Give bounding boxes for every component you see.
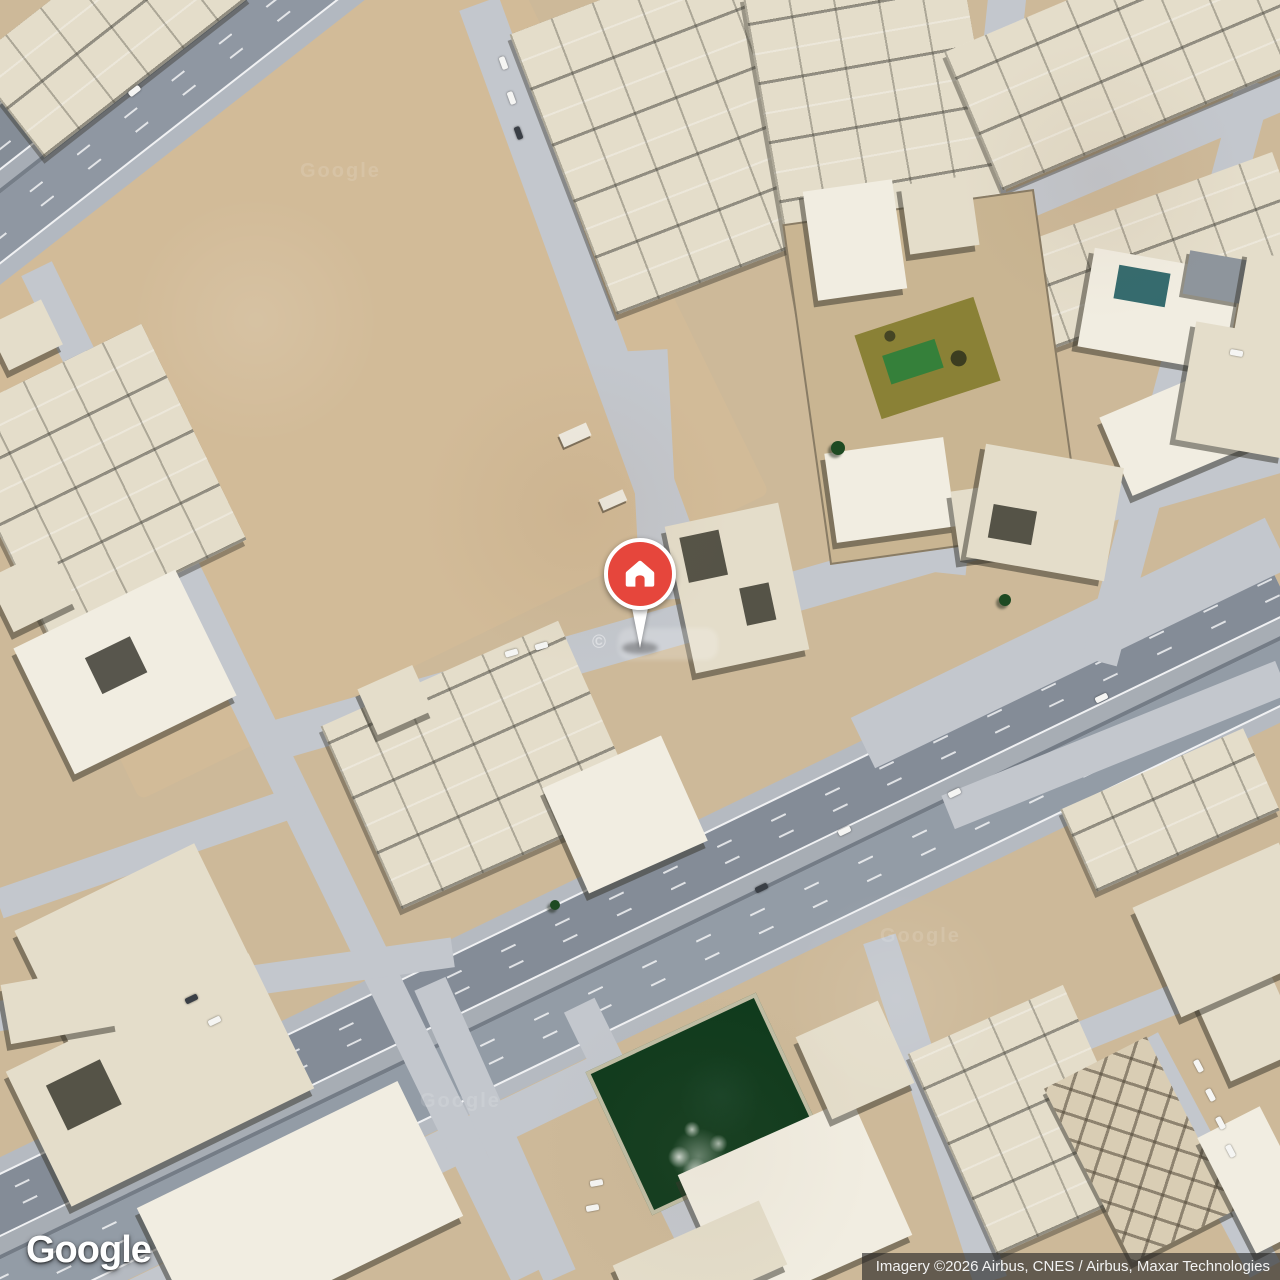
inner-courtyard [988, 504, 1037, 545]
car [1193, 1059, 1204, 1073]
ghost-watermark: Google [300, 160, 381, 183]
map-canvas[interactable]: Google Google Google © Google Imagery ©2… [0, 0, 1280, 1280]
building [824, 437, 955, 543]
ghost-watermark: Google [880, 925, 961, 948]
tree-shadow [883, 329, 897, 343]
building [966, 444, 1124, 582]
house-icon [621, 555, 659, 593]
pin-circle[interactable] [604, 538, 676, 610]
building [900, 175, 979, 254]
listing-watermark-copyright: © [592, 632, 606, 654]
tree [831, 441, 845, 455]
car [1205, 1088, 1216, 1102]
google-logo[interactable]: Google [26, 1229, 151, 1272]
grass-patch [882, 339, 944, 385]
attribution-text: Imagery ©2026 Airbus, CNES / Airbus, Max… [876, 1258, 1270, 1275]
car [586, 1204, 600, 1212]
building [803, 179, 907, 300]
imagery-attribution: Imagery ©2026 Airbus, CNES / Airbus, Max… [862, 1253, 1280, 1280]
tree [550, 900, 560, 910]
inner-courtyard [85, 636, 147, 694]
tree [999, 594, 1011, 606]
ghost-watermark: Google [420, 1090, 501, 1113]
tree-shadow [949, 348, 969, 368]
inner-courtyard [739, 582, 776, 625]
car [590, 1179, 604, 1187]
inner-courtyard [679, 530, 728, 583]
inner-courtyard [46, 1059, 122, 1130]
